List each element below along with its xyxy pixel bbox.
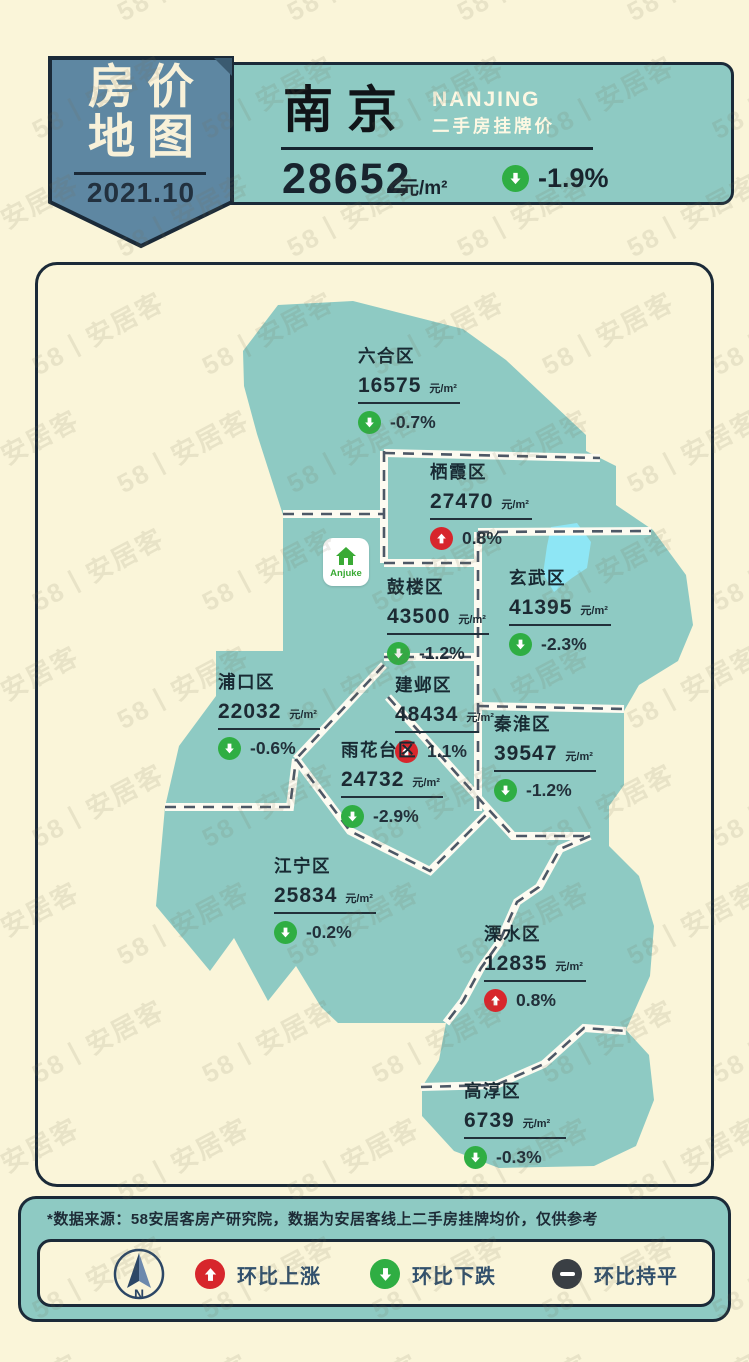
- district-yuhuatai: 雨花台区 24732元/m² -2.9%: [341, 737, 443, 828]
- city-average-price: 28652: [282, 155, 412, 204]
- badge-date: 2021.10: [46, 177, 236, 209]
- nanjing-district-map: Anjuke 六合区 16575元/m² -0.7% 栖霞区 27470元/m²…: [35, 262, 714, 1187]
- city-price-unit: 元/m²: [400, 173, 448, 200]
- legend: N 环比上涨 环比下跌 环比持平: [37, 1239, 715, 1307]
- change-arrow-icon: [494, 779, 517, 802]
- change-arrow-icon: [509, 633, 532, 656]
- header-divider: [281, 147, 593, 150]
- change-arrow-icon: [218, 737, 241, 760]
- header-subtitle: 二手房挂牌价: [432, 113, 555, 138]
- city-change-percent: -1.9%: [538, 163, 609, 194]
- anjuke-logo-text: Anjuke: [330, 568, 362, 579]
- city-change: -1.9%: [502, 163, 609, 194]
- change-arrow-icon: [341, 805, 364, 828]
- house-icon: [334, 545, 358, 567]
- change-arrow-icon: [484, 989, 507, 1012]
- change-arrow-icon: [502, 165, 529, 192]
- district-qinhuai: 秦淮区 39547元/m² -1.2%: [494, 711, 596, 802]
- compass-north-label: N: [134, 1286, 144, 1302]
- flat-minus-icon: [552, 1259, 582, 1289]
- change-arrow-icon: [387, 642, 410, 665]
- change-arrow-icon: [358, 411, 381, 434]
- footer-banner: *数据来源：58安居客房产研究院，数据为安居客线上二手房挂牌均价，仅供参考 N …: [18, 1196, 731, 1322]
- legend-item-flat: 环比持平: [552, 1259, 678, 1289]
- district-gaochun: 高淳区 6739元/m² -0.3%: [464, 1078, 566, 1169]
- district-gulou: 鼓楼区 43500元/m² -1.2%: [387, 574, 489, 665]
- change-arrow-icon: [274, 921, 297, 944]
- district-luhe: 六合区 16575元/m² -0.7%: [358, 343, 460, 434]
- up-arrow-icon: [195, 1259, 225, 1289]
- badge-title-line2: 地图: [46, 112, 236, 162]
- change-arrow-icon: [464, 1146, 487, 1169]
- change-arrow-icon: [430, 527, 453, 550]
- district-xuanwu: 玄武区 41395元/m² -2.3%: [509, 565, 611, 656]
- legend-item-up: 环比上涨: [195, 1259, 321, 1289]
- badge-title-line1: 房价: [46, 62, 236, 112]
- data-source-note: *数据来源：58安居客房产研究院，数据为安居客线上二手房挂牌均价，仅供参考: [47, 1208, 598, 1229]
- badge-divider: [74, 172, 206, 175]
- anjuke-logo: Anjuke: [323, 538, 369, 586]
- district-pukou: 浦口区 22032元/m² -0.6%: [218, 669, 320, 760]
- city-title: 南京: [283, 70, 411, 142]
- district-lishui: 溧水区 12835元/m² 0.8%: [484, 921, 586, 1012]
- city-title-en: NANJING: [432, 88, 541, 112]
- district-jiangning: 江宁区 25834元/m² -0.2%: [274, 853, 376, 944]
- down-arrow-icon: [370, 1259, 400, 1289]
- legend-item-down: 环比下跌: [370, 1259, 496, 1289]
- district-qixia: 栖霞区 27470元/m² 0.8%: [430, 459, 532, 550]
- compass-icon: N: [110, 1246, 168, 1306]
- title-badge: 房价 地图 2021.10: [46, 54, 236, 254]
